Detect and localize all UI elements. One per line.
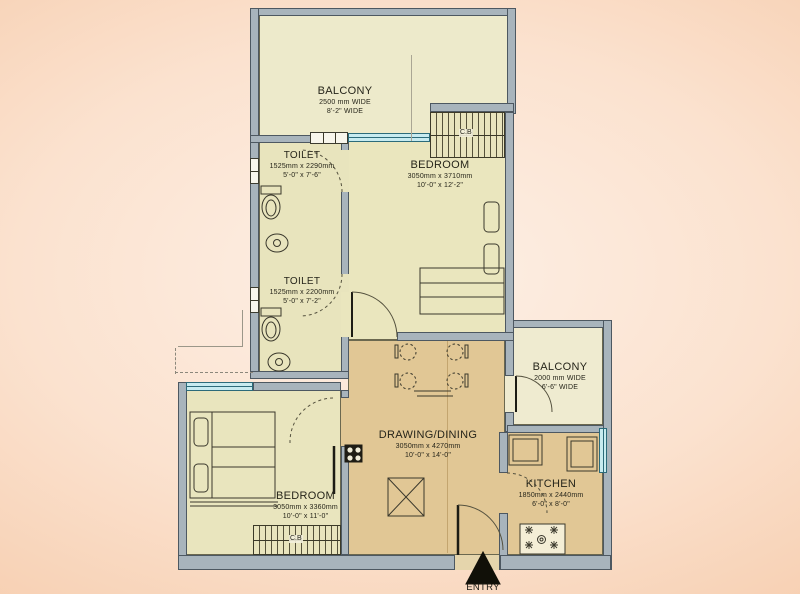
toilet-wc-icon [261,186,281,219]
gas-stove-icon [520,524,565,554]
washbasin-icon [266,234,288,252]
room-size-mm: 1525mm x 2290mm [262,162,342,171]
tv-unit [388,478,424,516]
room-size-ft: 8'-2" WIDE [280,107,410,116]
room-size-mm: 2500 mm WIDE [280,98,410,107]
room-size-ft: 10'-0" x 14'-0" [355,451,501,460]
room-label-balcony-top: BALCONY 2500 mm WIDE 8'-2" WIDE [280,84,410,116]
room-size-ft: 5'-0" x 7'-6" [262,171,342,180]
room-label-toilet-2: TOILET 1525mm x 2200mm 5'-0" x 7'-2" [262,275,342,306]
door-swing-arc [352,292,397,337]
bed [420,202,504,314]
wardrobe-bottom-label: C.B [289,535,303,543]
room-label-bedroom-top: BEDROOM 3050mm x 3710mm 10'-0" x 12'-2" [375,158,505,190]
room-size-mm: 3050mm x 3360mm [248,503,363,512]
kitchen-counter [509,435,597,471]
door-leaf [352,292,397,337]
room-name: TOILET [262,149,342,162]
room-size-ft: 6'-6" WIDE [518,383,602,392]
room-name: DRAWING/DINING [355,428,501,442]
room-size-mm: 3050mm x 4270mm [355,442,501,451]
door-leaf [458,505,503,555]
wardrobe-top-label: C.B [459,129,473,137]
room-size-ft: 10'-0" x 11'-0" [248,512,363,521]
room-label-bedroom-bottom: BEDROOM 3050mm x 3360mm 10'-0" x 11'-0" [248,489,363,521]
room-name: BALCONY [280,84,410,98]
room-size-mm: 3050mm x 3710mm [375,172,505,181]
room-size-mm: 2000 mm WIDE [518,374,602,383]
room-size-mm: 1850mm x 2440mm [502,491,600,500]
room-label-kitchen: KITCHEN 1850mm x 2440mm 6'-0" x 8'-0" [502,477,600,509]
washbasin-icon [268,353,290,371]
dining-set [395,344,468,396]
room-name: TOILET [262,275,342,288]
room-name: BEDROOM [375,158,505,172]
room-name: KITCHEN [502,477,600,491]
door-swing-arc [290,398,334,443]
room-label-balcony-right: BALCONY 2000 mm WIDE 6'-6" WIDE [518,360,602,392]
entry-arrow-icon [466,552,500,584]
room-size-mm: 1525mm x 2200mm [262,288,342,297]
room-label-toilet-1: TOILET 1525mm x 2290mm 5'-0" x 7'-6" [262,149,342,180]
room-size-ft: 10'-0" x 12'-2" [375,181,505,190]
room-size-ft: 6'-0" x 8'-0" [502,500,600,509]
door-leaf [290,398,334,494]
room-label-drawing-dining: DRAWING/DINING 3050mm x 4270mm 10'-0" x … [355,428,501,460]
room-size-ft: 5'-0" x 7'-2" [262,297,342,306]
entry-label: ENTRY [460,582,506,593]
toilet-wc-icon [261,308,281,341]
room-name: BEDROOM [248,489,363,503]
room-name: BALCONY [518,360,602,374]
door-swing-arc [458,505,503,550]
floor-plan-canvas: C.B C.B [0,0,800,594]
